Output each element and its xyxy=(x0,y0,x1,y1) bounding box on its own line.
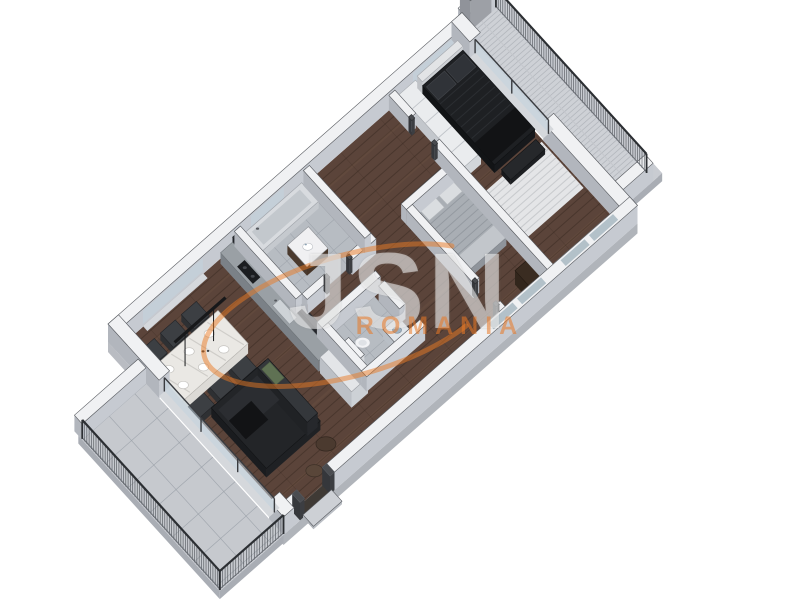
floorplan-svg xyxy=(0,0,800,600)
floorplan-render: JSN ROMANIA xyxy=(0,0,800,600)
